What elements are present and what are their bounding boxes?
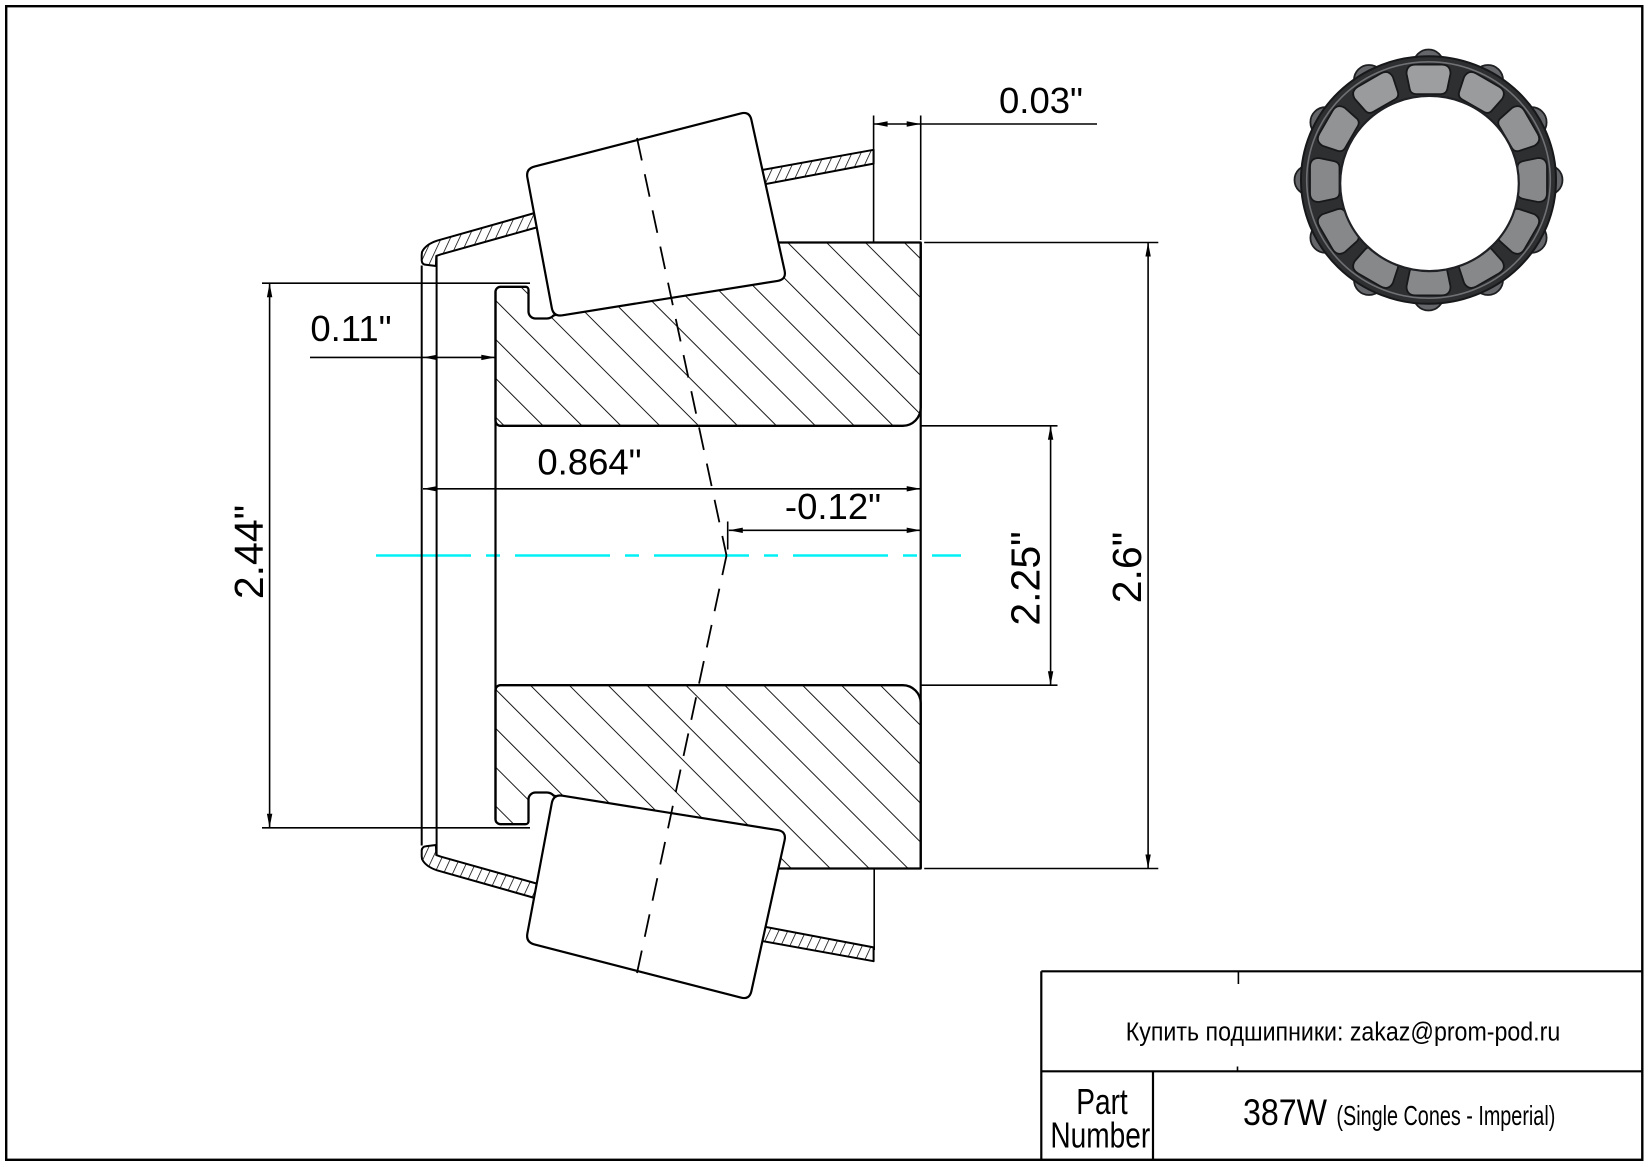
svg-text:0.864": 0.864" bbox=[537, 442, 641, 483]
svg-text:(Single Cones - Imperial): (Single Cones - Imperial) bbox=[1336, 1101, 1555, 1132]
svg-text:2.6": 2.6" bbox=[1104, 532, 1150, 604]
svg-text:Number: Number bbox=[1050, 1115, 1150, 1155]
svg-text:0.11": 0.11" bbox=[310, 308, 391, 349]
svg-text:-0.12": -0.12" bbox=[785, 486, 881, 527]
svg-text:2.44": 2.44" bbox=[226, 505, 272, 599]
svg-text:Купить подшипники: zakaz@prom-: Купить подшипники: zakaz@prom-pod.ru bbox=[1126, 1019, 1560, 1047]
svg-text:0.03": 0.03" bbox=[999, 80, 1083, 121]
svg-text:387W: 387W bbox=[1243, 1093, 1327, 1134]
svg-text:2.25": 2.25" bbox=[1002, 531, 1048, 625]
